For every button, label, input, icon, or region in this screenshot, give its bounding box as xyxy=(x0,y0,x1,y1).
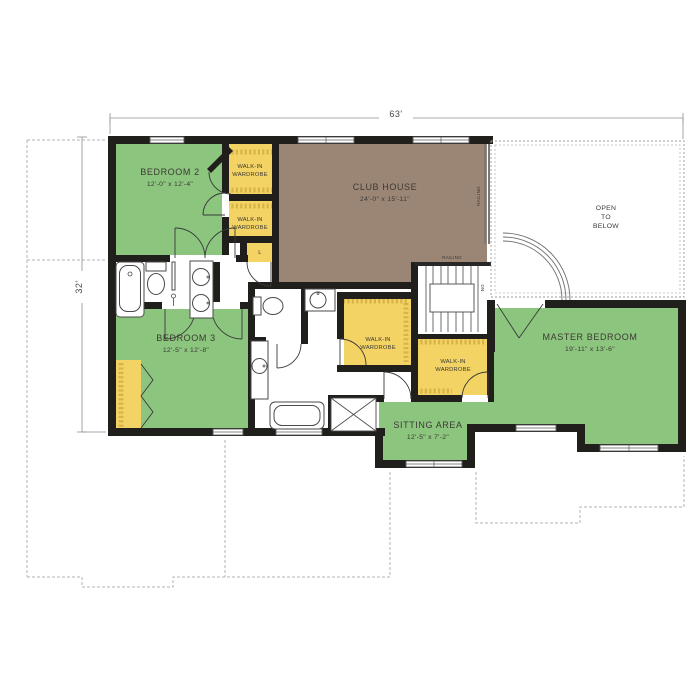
bathtub-master xyxy=(270,402,324,429)
window-bath xyxy=(276,429,322,435)
wardrobe-c-line1: WALK-IN xyxy=(365,337,390,343)
window-clubhouse-1 xyxy=(298,137,354,143)
club-house-floor xyxy=(279,144,487,282)
open-to-below-line2: TO xyxy=(601,214,611,221)
floor-plan-page: 63' 32' xyxy=(0,0,700,700)
bedroom3-size: 12'-5" x 12'-8" xyxy=(163,347,210,354)
railing-label-clubhouse: RAILING xyxy=(476,186,481,206)
stair-railing xyxy=(415,262,491,266)
dimension-width-label: 63' xyxy=(389,109,402,119)
club-house-label: CLUB HOUSE xyxy=(353,182,418,192)
wardrobe-a-line2: WARDROBE xyxy=(232,172,268,178)
window-master-1 xyxy=(516,425,556,431)
wardrobe-d-line2: WARDROBE xyxy=(435,367,471,373)
bedroom2-label: BEDROOM 2 xyxy=(140,167,199,177)
linen-label: L xyxy=(258,250,262,256)
wardrobe-a-line1: WALK-IN xyxy=(237,164,262,170)
dimension-height: 32' xyxy=(74,137,108,432)
club-house-size: 24'-0" x 15'-11" xyxy=(360,196,410,203)
sink-master-top xyxy=(305,289,335,311)
window-master-2 xyxy=(600,445,658,451)
window-bedroom3 xyxy=(213,429,243,435)
window-clubhouse-2 xyxy=(413,137,469,143)
open-to-below-line1: OPEN xyxy=(596,205,616,212)
toilet-master xyxy=(253,297,283,315)
floor-plan-drawing: 63' 32' xyxy=(0,0,700,700)
bathtub-hall xyxy=(116,262,144,317)
wardrobe-d-line1: WALK-IN xyxy=(440,359,465,365)
railing-label-stairs: RAILING xyxy=(442,255,462,260)
bedroom2-size: 12'-0" x 12'-4" xyxy=(147,181,194,188)
master-bedroom-label: MASTER BEDROOM xyxy=(543,332,638,342)
toilet-hall xyxy=(146,262,166,295)
sitting-area-label: SITTING AREA xyxy=(393,420,462,430)
double-vanity xyxy=(190,261,213,318)
open-to-below-line3: BELOW xyxy=(593,223,619,230)
wardrobe-c-floor xyxy=(340,295,412,367)
master-bedroom-size: 19'-11" x 13'-6" xyxy=(565,346,615,353)
vanity-master xyxy=(251,341,268,399)
stair-stringer xyxy=(430,284,474,312)
stairs-down-label: DN xyxy=(480,284,485,291)
clubhouse-railing-line1 xyxy=(484,144,486,244)
wardrobe-b-line2: WARDROBE xyxy=(232,225,268,231)
window-sitting xyxy=(406,461,462,467)
shower-master xyxy=(331,398,376,431)
bedroom3-label: BEDROOM 3 xyxy=(156,333,215,343)
wardrobe-c-line2: WARDROBE xyxy=(360,345,396,351)
staircase: DN xyxy=(418,266,487,334)
window-bedroom2 xyxy=(150,137,184,143)
dimension-height-label: 32' xyxy=(74,280,84,293)
clubhouse-railing-line2 xyxy=(488,144,490,244)
wardrobe-b-line1: WALK-IN xyxy=(237,217,262,223)
sitting-area-size: 12'-5" x 7'-2" xyxy=(407,434,450,441)
